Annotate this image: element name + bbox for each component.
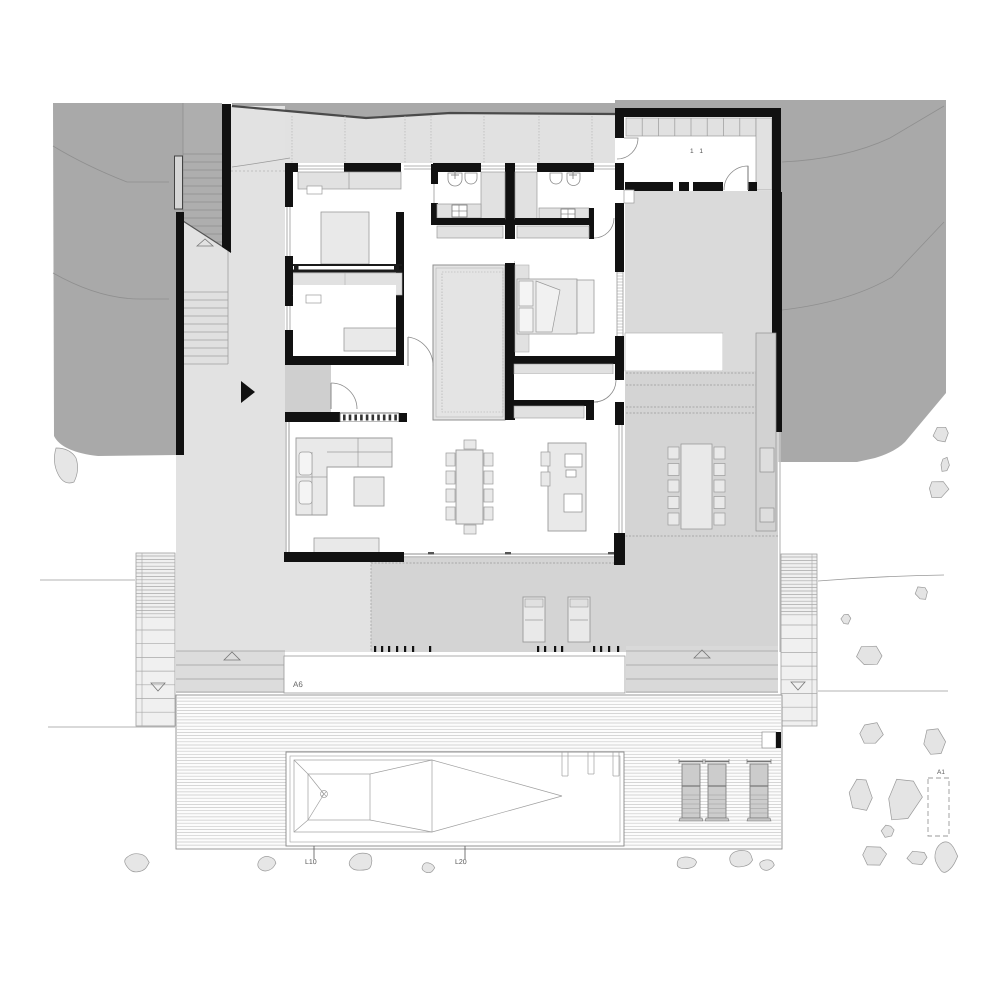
svg-text:L20: L20 (455, 859, 467, 866)
svg-text:1 1: 1 1 (690, 148, 705, 155)
svg-text:L10: L10 (305, 859, 317, 866)
svg-text:A6: A6 (293, 680, 303, 689)
svg-text:A1: A1 (937, 769, 945, 776)
